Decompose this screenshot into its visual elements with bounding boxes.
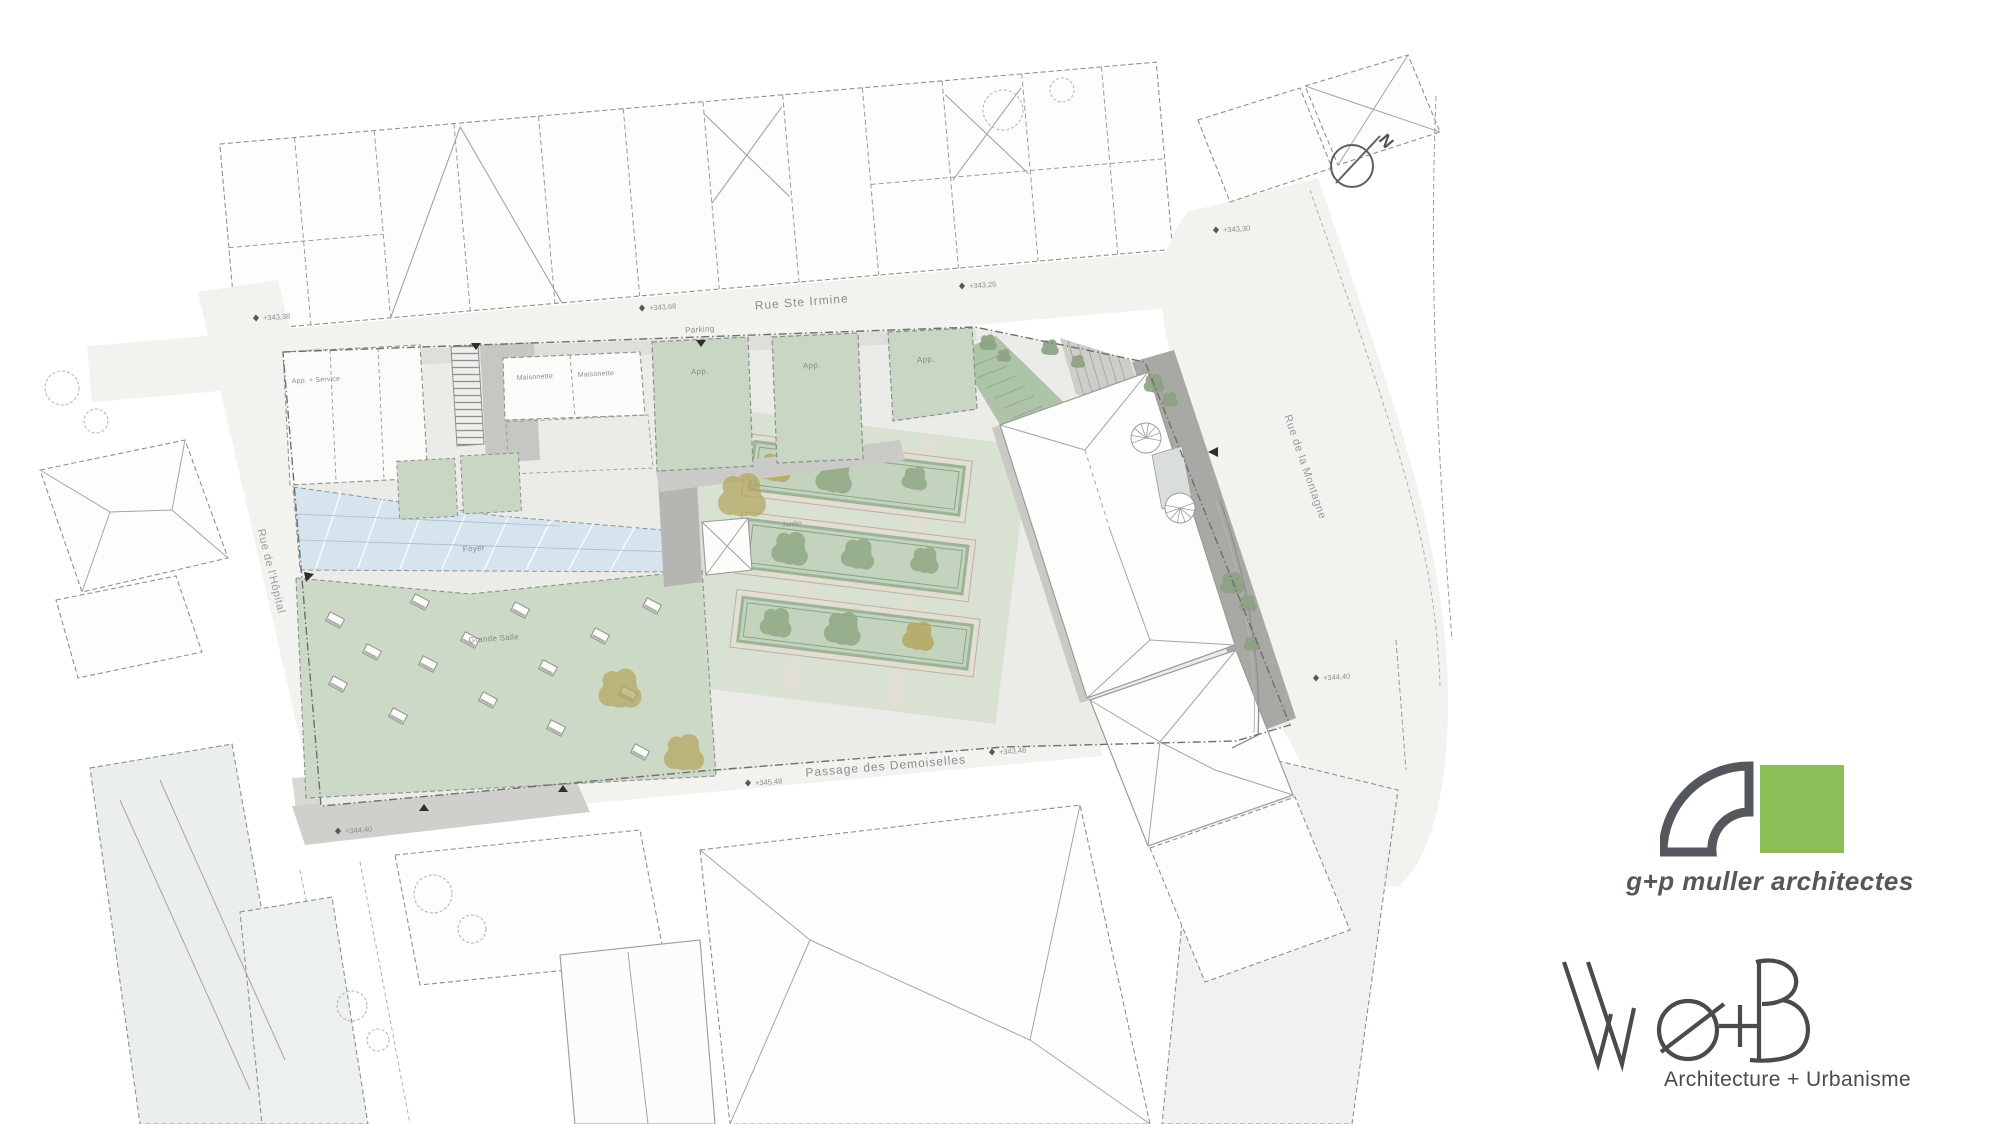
page: +343,38 +343,68 +343,26 +343,30 +344,40 … (0, 0, 2000, 1124)
quarter-circle-icon (1663, 766, 1749, 852)
elevation-text: +343,68 (649, 302, 677, 313)
web-logo-tagline: Architecture + Urbanisme (1664, 1068, 1964, 1092)
elevation-text: +345,48 (755, 777, 783, 788)
web-letter-b-top (1756, 961, 1796, 1004)
elevation-text: +343,38 (263, 312, 291, 323)
gpmuller-logo-icon (1660, 760, 1850, 858)
label-app-1: App. (691, 367, 709, 377)
label-app-3: App. (917, 355, 935, 365)
label-app-2: App. (803, 361, 821, 371)
site-plan: +343,38 +343,68 +343,26 +343,30 +344,40 … (0, 0, 1460, 1124)
label-foyer: Foyer (463, 543, 486, 554)
gpmuller-logo-text: g+p muller architectes (1570, 866, 1970, 897)
web-letter-w (1564, 962, 1634, 1064)
elevation-text: +344,40 (1323, 672, 1351, 683)
south-white-building (560, 940, 715, 1124)
pyramid-skylight (702, 518, 752, 575)
elevation-text: +343,46 (999, 746, 1027, 757)
stair-strip (451, 345, 484, 446)
grande-salle-roof (296, 570, 716, 798)
web-plus (1719, 1005, 1761, 1047)
elevation-text: +343,30 (1223, 224, 1251, 235)
elevation-text: +344,40 (345, 825, 373, 836)
web-wordmark-icon (1556, 948, 1836, 1073)
green-square-icon (1760, 765, 1844, 853)
elevation-text: +343,26 (969, 280, 997, 291)
label-jardin: Jardin (782, 520, 803, 528)
